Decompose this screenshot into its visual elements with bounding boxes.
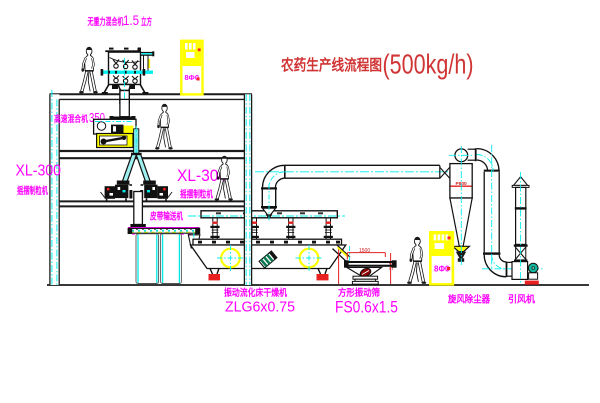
svg-text:XL-300: XL-300	[16, 163, 62, 180]
svg-text:ZLG6x0.75: ZLG6x0.75	[225, 299, 295, 316]
svg-text:引风机: 引风机	[508, 294, 535, 306]
svg-text:(500kg/h): (500kg/h)	[383, 49, 474, 80]
svg-text:皮带输送机: 皮带输送机	[149, 211, 183, 223]
svg-text:摇摆制粒机: 摇摆制粒机	[17, 185, 48, 197]
svg-text:振动流化床干燥机: 振动流化床干燥机	[224, 287, 287, 299]
svg-text:1500: 1500	[359, 248, 370, 254]
svg-text:方形振动筛: 方形振动筛	[338, 287, 380, 299]
svg-text:农药生产线流程图: 农药生产线流程图	[280, 56, 382, 74]
svg-text:旋风除尘器: 旋风除尘器	[447, 294, 490, 306]
svg-text:摇摆制粒机: 摇摆制粒机	[180, 189, 213, 201]
svg-text:FS0.6x1.5: FS0.6x1.5	[335, 299, 398, 317]
